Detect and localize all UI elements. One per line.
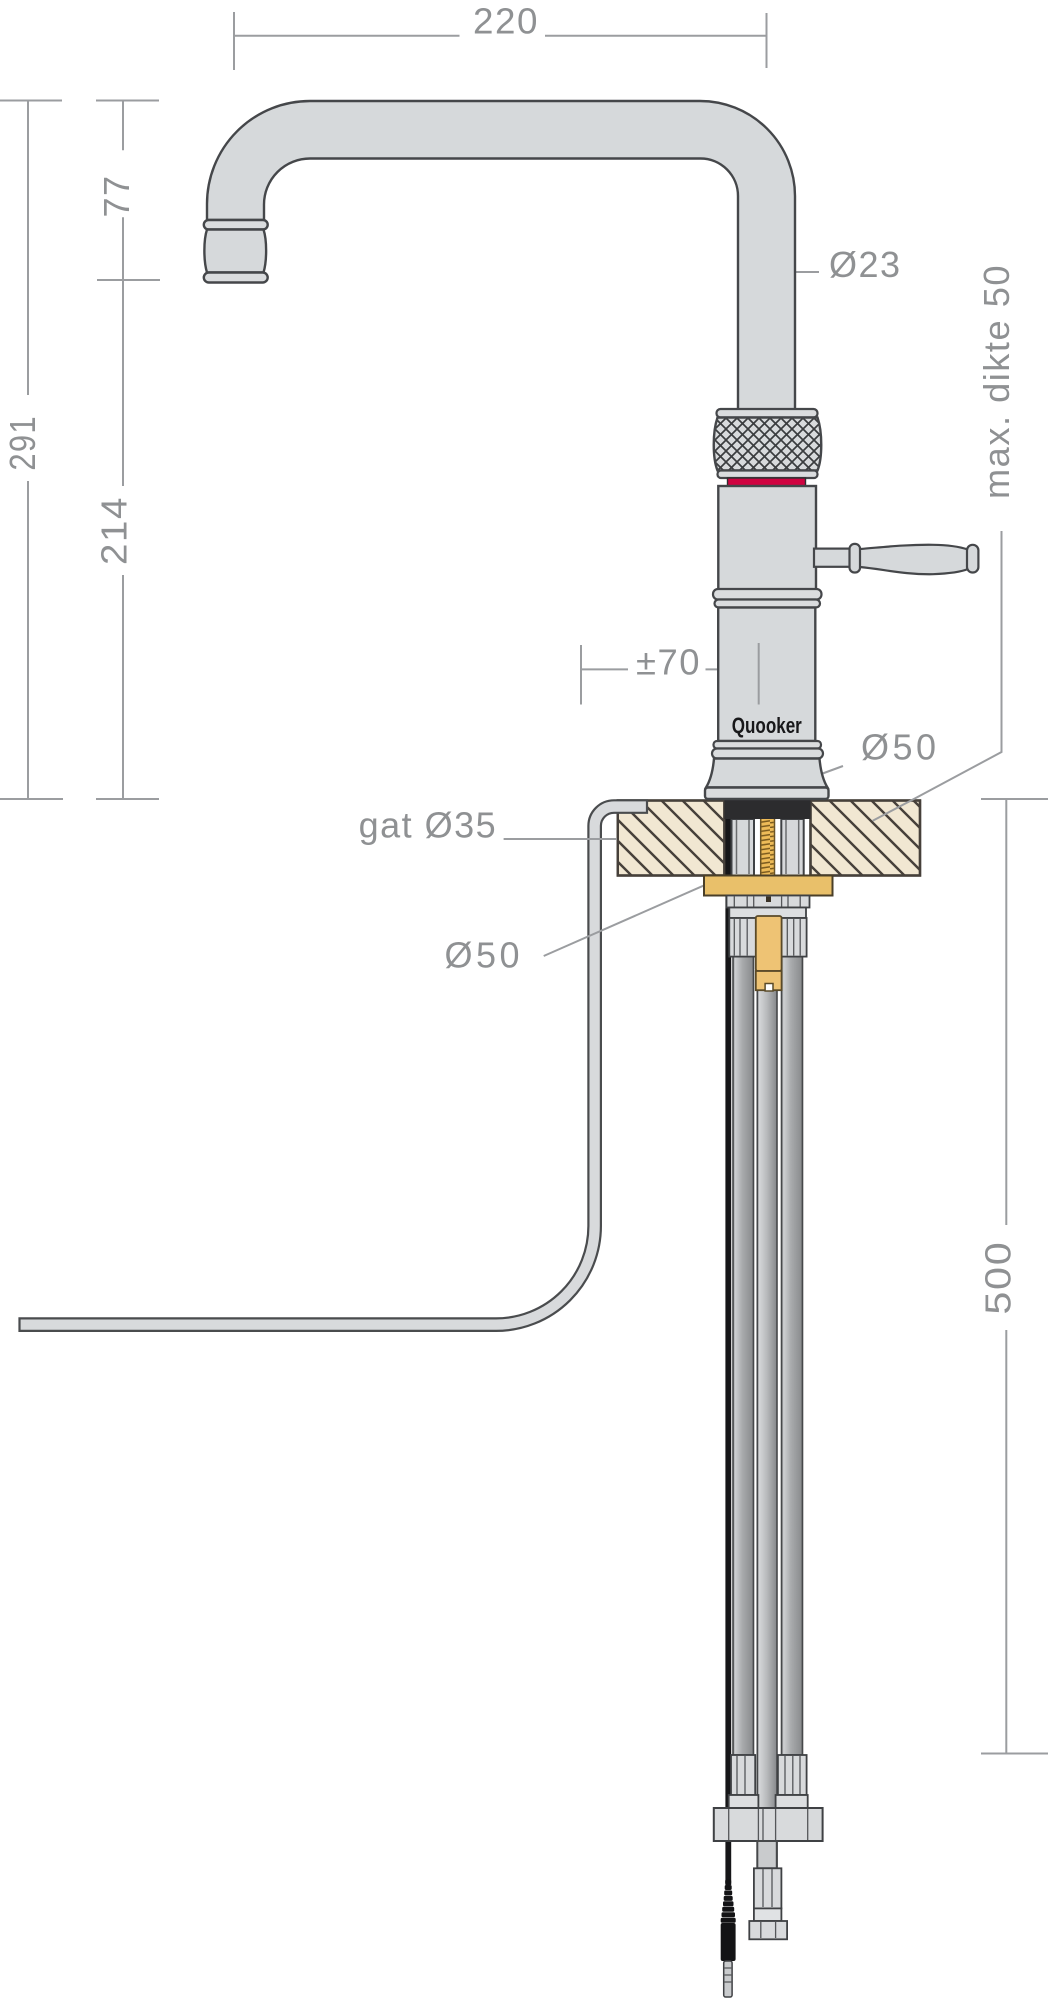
svg-text:500: 500	[977, 1241, 1018, 1315]
svg-text:220: 220	[473, 1, 539, 42]
svg-text:77: 77	[96, 174, 137, 217]
svg-text:Quooker: Quooker	[732, 713, 802, 738]
svg-text:gat Ø35: gat Ø35	[359, 805, 498, 846]
svg-text:Ø23: Ø23	[829, 244, 902, 285]
svg-text:±70: ±70	[636, 642, 701, 683]
svg-text:Ø50: Ø50	[861, 727, 940, 768]
svg-text:214: 214	[94, 496, 135, 565]
svg-text:291: 291	[2, 415, 43, 471]
svg-text:max. dikte 50: max. dikte 50	[976, 264, 1017, 499]
svg-text:Ø50: Ø50	[445, 935, 524, 976]
